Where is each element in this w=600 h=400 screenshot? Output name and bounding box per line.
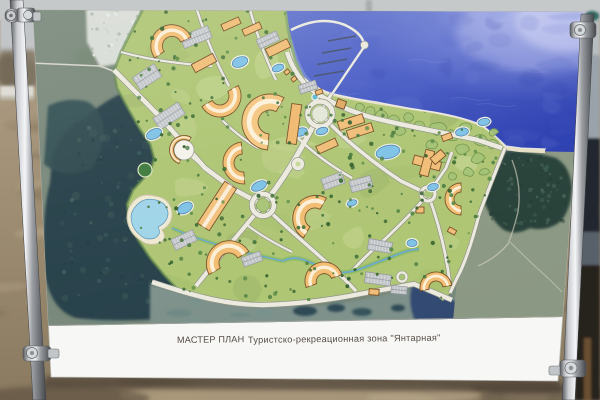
svg-text:МАСТЕР ПЛАН: МАСТЕР ПЛАН — [177, 334, 244, 345]
